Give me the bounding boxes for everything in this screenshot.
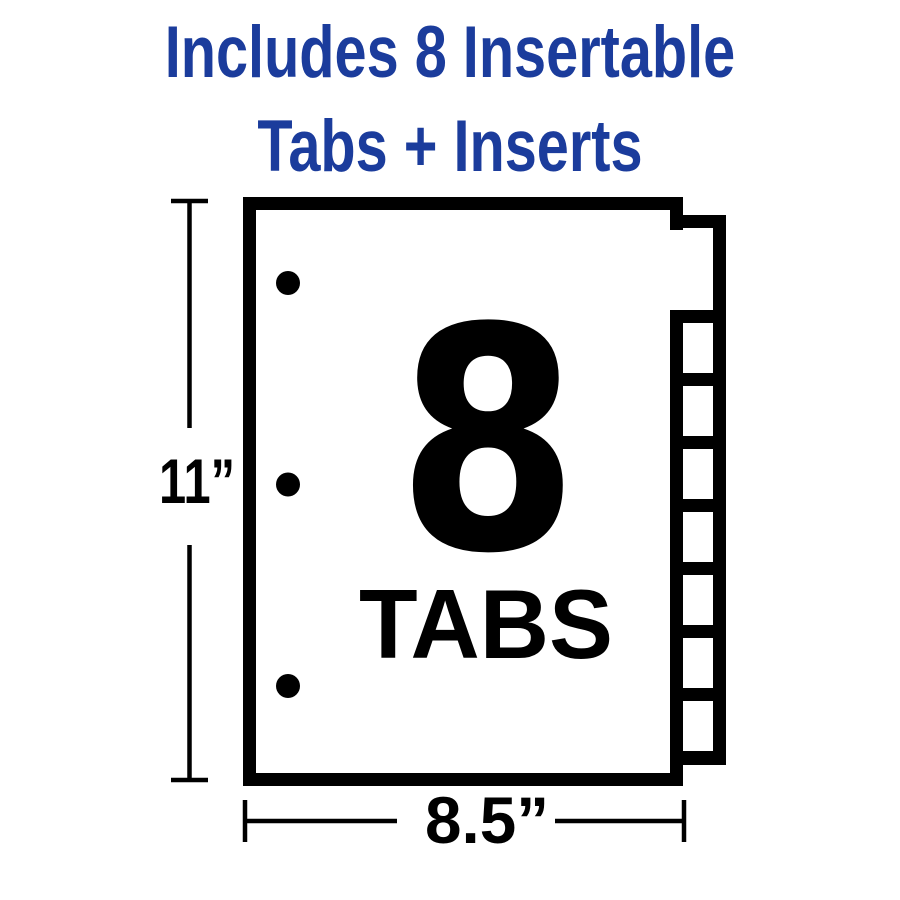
punch-hole <box>276 674 300 698</box>
tab-window <box>683 512 713 562</box>
tab-ladder-bottom-step <box>670 760 683 786</box>
width-dimension: 8.5” <box>245 783 684 857</box>
tab-window <box>683 386 713 436</box>
tab-window <box>683 449 713 499</box>
tab-window <box>683 575 713 625</box>
tab-count-number: 8 <box>397 262 579 621</box>
punch-holes <box>276 271 300 698</box>
height-dimension: 11” <box>159 201 235 780</box>
tab-window <box>683 323 713 373</box>
tab-window <box>683 701 713 751</box>
punch-hole <box>276 473 300 497</box>
sheet-top-border <box>243 197 683 210</box>
punch-hole <box>276 271 300 295</box>
tab-stack <box>670 197 726 786</box>
product-illustration: Includes 8 Insertable Tabs + Inserts 8 T… <box>0 0 900 900</box>
height-dim-label: 11” <box>159 447 235 517</box>
divider-diagram: 8 TABS 11” 8.5” <box>0 0 900 900</box>
tab-window <box>683 638 713 688</box>
sheet-left-border <box>243 197 256 786</box>
tab-windows <box>683 323 713 751</box>
width-dim-label: 8.5” <box>425 783 549 857</box>
tabs-word: TABS <box>359 569 613 679</box>
